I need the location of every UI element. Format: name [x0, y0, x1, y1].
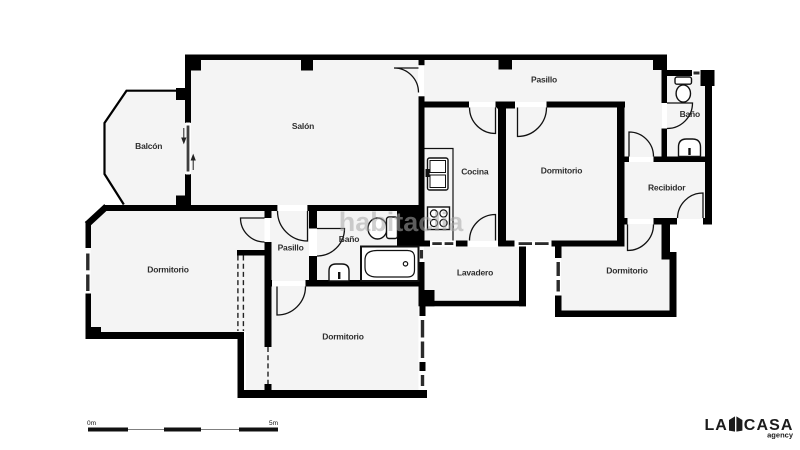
svg-text:LA: LA: [705, 417, 728, 434]
svg-text:Baño: Baño: [680, 109, 700, 119]
svg-text:0m: 0m: [87, 420, 96, 427]
svg-text:Dormitorio: Dormitorio: [606, 266, 647, 276]
svg-text:Dormitorio: Dormitorio: [541, 166, 582, 176]
svg-text:Cocina: Cocina: [461, 167, 489, 177]
svg-text:Salón: Salón: [292, 121, 314, 131]
svg-text:Pasillo: Pasillo: [531, 75, 557, 85]
svg-text:Lavadero: Lavadero: [457, 268, 493, 278]
svg-text:habitaclia: habitaclia: [339, 207, 465, 237]
svg-text:Pasillo: Pasillo: [278, 243, 304, 253]
svg-text:agency: agency: [767, 431, 794, 440]
svg-text:Dormitorio: Dormitorio: [147, 265, 188, 275]
svg-text:5m: 5m: [269, 420, 278, 427]
svg-text:Balcón: Balcón: [135, 141, 162, 151]
svg-text:Recibidor: Recibidor: [648, 183, 686, 193]
svg-text:Dormitorio: Dormitorio: [322, 332, 363, 342]
